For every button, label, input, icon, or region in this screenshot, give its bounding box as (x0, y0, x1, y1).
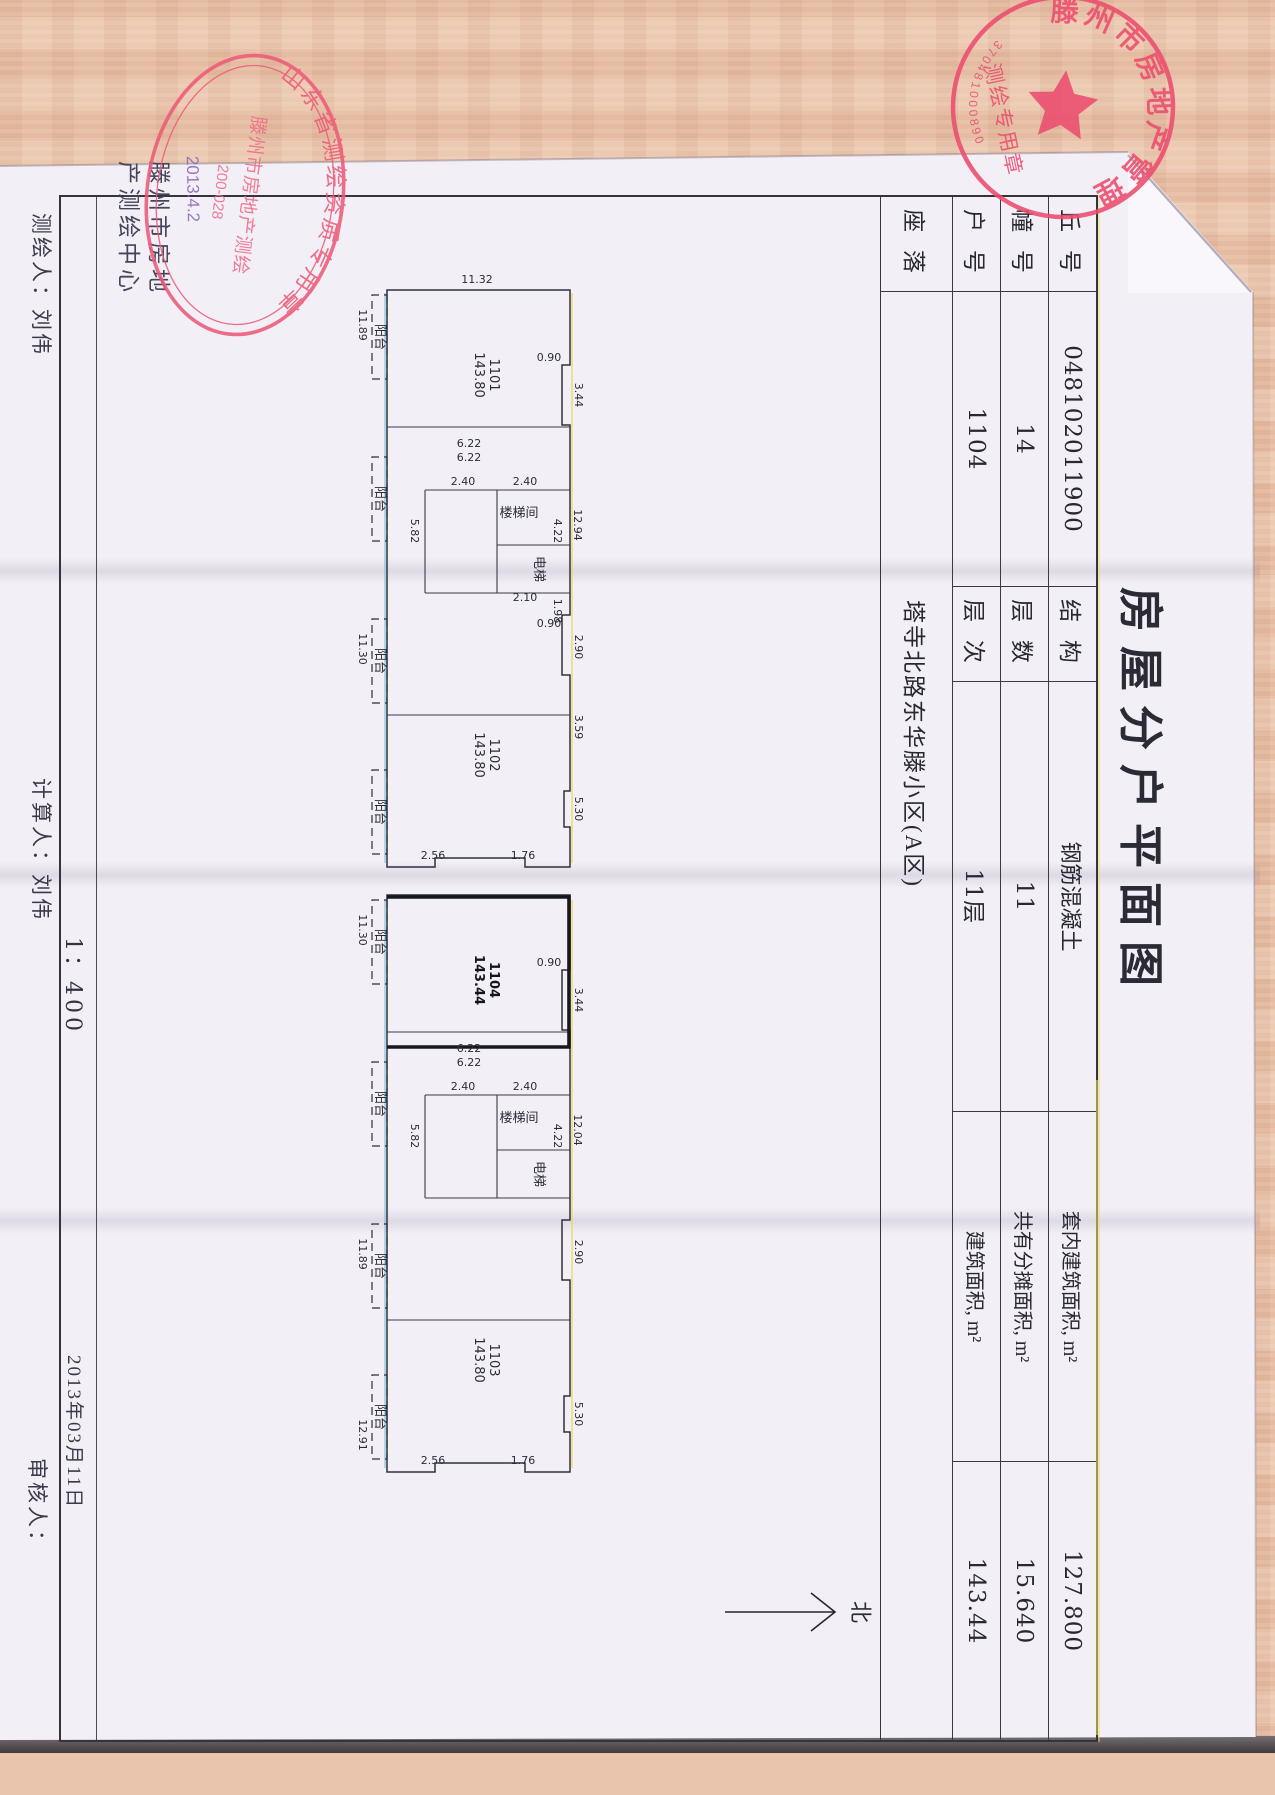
plan-dimension: 5.30 (572, 797, 585, 822)
north-label: 北 (848, 1601, 873, 1623)
plan-dimension: 6.22 (457, 1056, 482, 1069)
plan-dimension: 6.22 (457, 1042, 482, 1055)
plan-room-label: 阳台 (372, 324, 387, 350)
oval-stamp-handwritten-date: 2013.4.2 (183, 156, 203, 223)
plan-dimension: 5.82 (408, 1124, 421, 1149)
plan-dimension: 11.32 (461, 273, 493, 286)
plan-dimension: 12.91 (356, 1419, 369, 1451)
reviewer-signature: 审核人： (23, 1458, 53, 1554)
round-stamp-banner: 测绘专用章 (980, 61, 1027, 178)
plan-dimension: 2.90 (572, 635, 585, 660)
floor-plan: 北 12.9411.320.903.440.902.903.595.3011.8… (25, 195, 1225, 1795)
plan-room-label: 阳台 (372, 929, 387, 955)
plan-dimension: 11.89 (356, 309, 369, 341)
plan-room-label: 阳台 (372, 486, 387, 512)
plan-dimension: 2.56 (421, 1454, 446, 1467)
oval-stamp-number: 200-028 (208, 164, 232, 221)
plan-room-label: 1104 (486, 962, 501, 998)
plan-room-label: 阳台 (372, 1091, 387, 1117)
plan-dimension: 2.90 (572, 1240, 585, 1265)
plan-dimension: 1.98 (551, 599, 564, 624)
plan-dimension: 6.22 (457, 437, 482, 450)
oval-stamp-org-text: 滕州市房地产测绘 (228, 115, 269, 277)
plan-dimension: 4.22 (551, 1124, 564, 1149)
plan-room-label: 1101 (486, 358, 501, 391)
plan-room-label: 楼梯间 (499, 506, 538, 521)
plan-room-label: 阳台 (372, 648, 387, 674)
plan-dimension: 11.89 (356, 1238, 369, 1270)
plan-room-label: 电梯 (531, 1161, 546, 1187)
plan-dimension: 12.04 (571, 1114, 584, 1146)
north-arrow: 北 (725, 1593, 873, 1631)
plan-room-label: 1103 (486, 1343, 501, 1376)
surveyor-signature: 测绘人：刘伟 (27, 213, 57, 357)
plan-room-label: 阳台 (372, 799, 387, 825)
plan-dimension: 0.90 (537, 956, 562, 969)
plan-dimension: 4.22 (551, 519, 564, 544)
plan-dimension: 2.40 (451, 1080, 476, 1093)
calculator-signature: 计算人：刘伟 (27, 778, 57, 922)
plan-room-label: 阳台 (372, 1253, 387, 1279)
plan-dimension: 11.30 (356, 914, 369, 946)
plan-dimension: 5.82 (408, 519, 421, 544)
plan-dimension: 2.10 (513, 591, 538, 604)
plan-room-label: 1102 (486, 738, 501, 771)
plan-dimension: 12.94 (571, 509, 584, 541)
plan-dimension: 2.40 (451, 475, 476, 488)
plan-dimension: 2.40 (513, 475, 538, 488)
oval-qualification-stamp: 山东省测绘资质专用章 滕州市房地产测绘 200-028 2013.4.2 (118, 33, 373, 358)
plan-room-label: 阳台 (372, 1404, 387, 1430)
plan-dimension: 3.44 (572, 988, 585, 1013)
plan-dimension: 3.59 (572, 715, 585, 740)
plan-room-label-area: 143.80 (471, 732, 486, 778)
plan-dimension: 3.44 (572, 383, 585, 408)
plan-dimension: 5.30 (572, 1402, 585, 1427)
document-content: 房屋分户平面图 丘 号 048102011900 结 构 钢筋混凝土 套内建筑面… (25, 195, 1225, 1795)
plan-dimension: 2.40 (513, 1080, 538, 1093)
plan-dimension: 0.90 (537, 351, 562, 364)
plan-room-label: 楼梯间 (499, 1111, 538, 1126)
plan-room-label-area: 143.80 (471, 1337, 486, 1383)
plan-dimension: 11.30 (356, 633, 369, 665)
scanned-document-page: { "title": "房屋分户平面图", "info_table": { "r… (0, 0, 1275, 1753)
star-icon (1026, 65, 1106, 148)
plan-dimension: 2.56 (421, 849, 446, 862)
plan-room-label-area: 143.80 (471, 352, 486, 398)
plan-room-label-area: 143.44 (471, 955, 486, 1005)
plan-dimension: 1.76 (511, 849, 536, 862)
plan-dimension: 6.22 (457, 451, 482, 464)
plan-dimension: 1.76 (511, 1454, 536, 1467)
plan-room-label: 电梯 (531, 556, 546, 582)
